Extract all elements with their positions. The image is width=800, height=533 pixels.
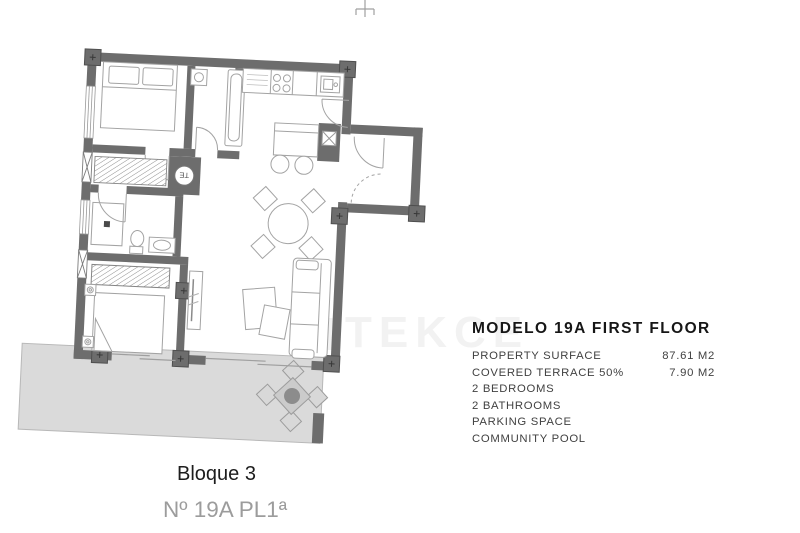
info-panel: MODELO 19A FIRST FLOOR PROPERTY SURFACE …: [472, 320, 760, 447]
terrace-wall-stub: [312, 413, 324, 443]
spec-row: PROPERTY SURFACE 87.61 M2: [472, 348, 715, 365]
entrance-door: [351, 137, 384, 204]
spec-value: 7.90 M2: [669, 365, 715, 382]
sofa: [289, 258, 332, 360]
spec-label: PROPERTY SURFACE: [472, 348, 601, 365]
spec-row: 2 BATHROOMS: [472, 398, 715, 415]
kitchen-island: [273, 123, 318, 157]
block-label: Bloque 3: [177, 463, 256, 486]
spec-label: COMMUNITY POOL: [472, 431, 586, 448]
spec-label: COVERED TERRACE 50%: [472, 365, 624, 382]
living-room: [186, 183, 335, 359]
plan-title: MODELO 19A FIRST FLOOR: [472, 320, 760, 338]
bedroom-2-wardrobe: [91, 264, 170, 288]
pillow: [143, 68, 174, 86]
water-heater-label: TE: [179, 170, 189, 179]
unit-label: Nº 19A PL1ª: [163, 497, 287, 523]
bar-stool: [271, 155, 290, 174]
page: TEKCE: [0, 0, 800, 533]
spec-label: 2 BEDROOMS: [472, 381, 554, 398]
bathroom-2: [91, 192, 178, 255]
toilet: [130, 230, 144, 247]
bed-2: [92, 293, 165, 354]
water-heater-symbol: TE: [174, 166, 194, 186]
dining-table: [267, 203, 309, 245]
bedroom-2: [82, 264, 170, 354]
dining-set: [250, 186, 325, 261]
bar-stool: [294, 156, 313, 175]
spec-row: PARKING SPACE: [472, 414, 715, 431]
spec-row: COMMUNITY POOL: [472, 431, 715, 448]
floor-plan: TE: [0, 0, 800, 533]
spec-list: PROPERTY SURFACE 87.61 M2 COVERED TERRAC…: [472, 348, 715, 447]
hall-wardrobe: [94, 156, 167, 185]
spec-row: 2 BEDROOMS: [472, 381, 715, 398]
spec-value: 87.61 M2: [662, 348, 715, 365]
pillow: [109, 66, 140, 84]
bathroom-1-door: [196, 127, 219, 150]
bathroom-1: [188, 68, 246, 151]
spec-row: COVERED TERRACE 50% 7.90 M2: [472, 365, 715, 382]
north-indicator-icon: [356, 0, 374, 17]
tv-unit: [187, 271, 203, 330]
spec-label: PARKING SPACE: [472, 414, 572, 431]
coffee-table: [259, 305, 290, 339]
spec-label: 2 BATHROOMS: [472, 398, 561, 415]
